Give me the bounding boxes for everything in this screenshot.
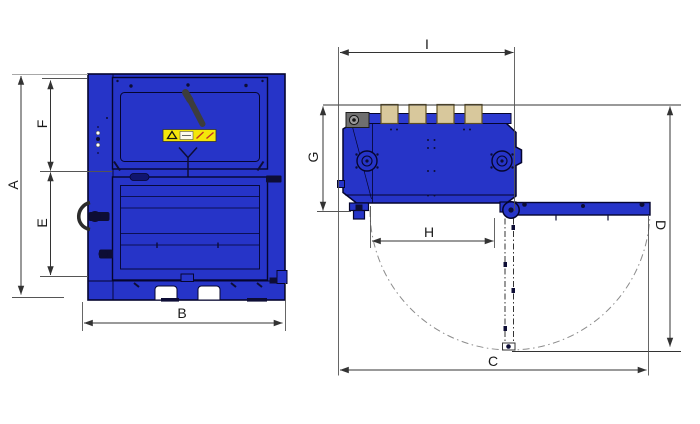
front-view-machine — [79, 74, 287, 302]
dim-label-B: B — [177, 306, 186, 320]
warning-label — [163, 130, 216, 142]
dim-label-E: E — [35, 218, 49, 227]
door-hinge-upper — [89, 211, 110, 222]
dim-label-G: G — [306, 152, 320, 163]
door-hinge — [503, 202, 519, 218]
door-swing-arc — [370, 210, 650, 350]
press-block-3 — [437, 105, 454, 124]
dim-label-H: H — [424, 225, 434, 239]
lower-door — [113, 177, 268, 280]
door-latch — [266, 176, 282, 183]
dim-label-F: F — [35, 120, 49, 129]
dim-label-I: I — [425, 37, 429, 51]
press-block-1 — [381, 105, 398, 124]
door-phantom-vertical — [503, 219, 516, 351]
fork-pocket-left — [155, 286, 177, 300]
press-block-2 — [409, 105, 426, 124]
baler-dimension-diagram — [0, 0, 700, 424]
dim-label-D: D — [654, 220, 668, 230]
door-open-horizontal — [500, 202, 650, 221]
technical-drawing: A F E B I G H D C — [0, 0, 700, 424]
dim-label-A: A — [6, 180, 20, 189]
corner-bracket — [277, 271, 287, 284]
press-block-4 — [465, 105, 482, 124]
machine-foot — [350, 203, 369, 219]
door-slot-handle — [130, 174, 149, 181]
side-view-machine — [338, 105, 651, 351]
fork-pocket-right — [198, 286, 220, 300]
motor-box — [346, 113, 369, 128]
door-hinge-lower — [99, 250, 114, 259]
dim-label-C: C — [488, 354, 498, 368]
